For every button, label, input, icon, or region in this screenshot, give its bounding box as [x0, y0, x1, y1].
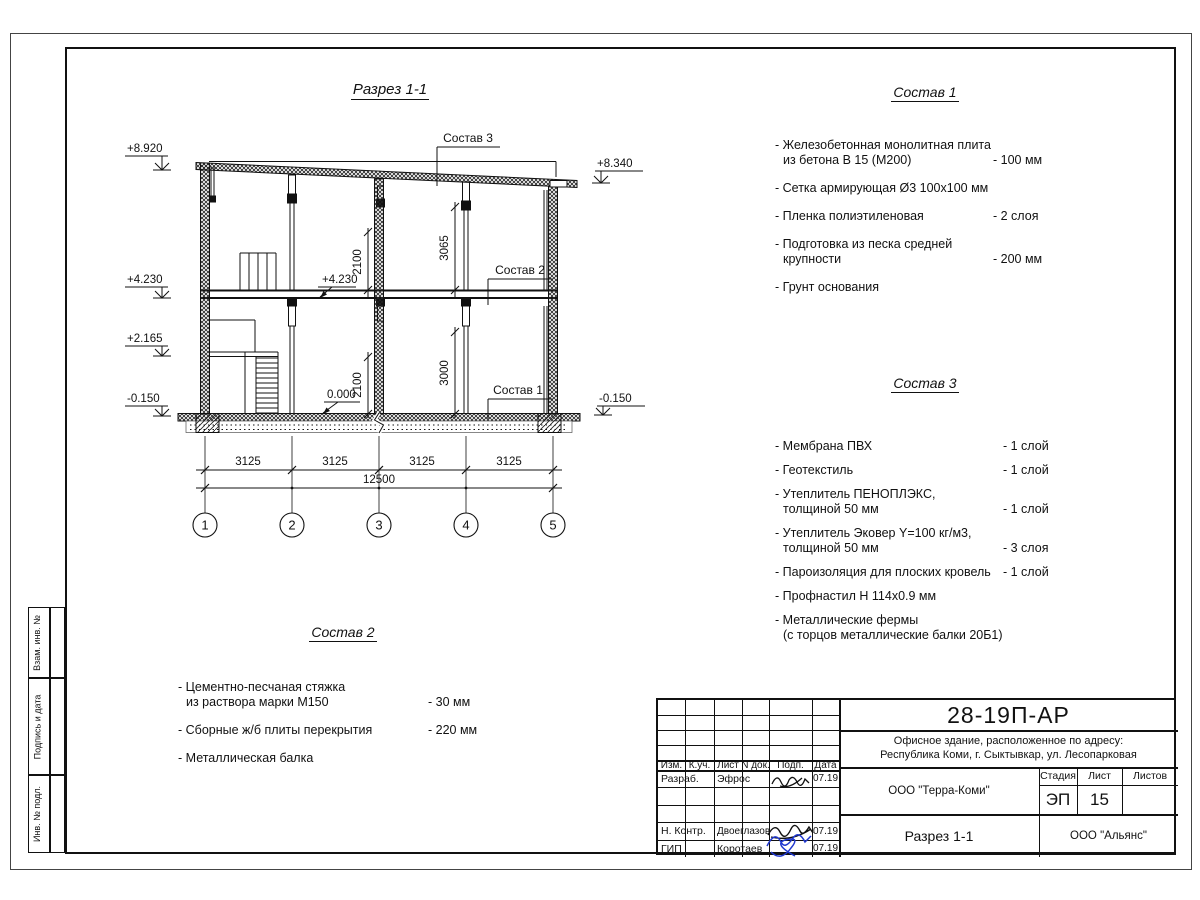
elev-left-top: +8.920: [127, 143, 163, 155]
axis-4: 4: [462, 518, 469, 533]
tb-name-efros: Эфрос: [714, 770, 772, 787]
dim-floor1-opening: 2100: [352, 372, 364, 398]
spec3-item: - Утеплитель ПЕНОПЛЭКС,толщиной 50 мм- 1…: [775, 487, 1115, 517]
ground-slab: [178, 413, 580, 433]
sidebox-podpis: Подпись и дата: [28, 678, 65, 775]
callout-sostav1: Состав 1: [493, 383, 543, 397]
spec1-title: Состав 1: [775, 85, 1075, 100]
tb-company: ООО "Терра-Коми": [839, 767, 1039, 814]
sidebox-label: Инв. № подл.: [32, 786, 42, 842]
callout-sostav2: Состав 2: [495, 263, 545, 277]
spec1-item: - Пленка полиэтиленовая- 2 слоя: [775, 209, 1105, 224]
tb-role-nkontr: Н. Контр.: [658, 822, 717, 840]
sidebox-vzam: Взам. инв. №: [28, 607, 65, 678]
elev-right-top: +8.340: [597, 158, 633, 170]
sidebox-inv: Инв. № подл.: [28, 775, 65, 853]
dim-floor1-clear: 3000: [439, 360, 451, 386]
tb-header-izm: Изм.: [658, 760, 685, 770]
spec2-item: - Цементно-песчаная стяжкаиз раствора ма…: [178, 680, 508, 710]
spec2-item: - Сборные ж/б плиты перекрытия- 220 мм: [178, 723, 508, 738]
tb-document-code: 28-19П-АР: [839, 700, 1178, 730]
sidebox-label: Подпись и дата: [32, 694, 42, 759]
elev-left-base: -0.150: [127, 393, 160, 405]
tb-date-razrab: 07.19: [812, 770, 839, 787]
callout-leaders: [437, 147, 553, 419]
dim-span-1: 3125: [235, 456, 261, 468]
tb-role-razrab: Разраб.: [658, 770, 717, 787]
spec-sostav1: Состав 1 - Железобетонная монолитная пли…: [775, 85, 1105, 308]
elev-inner-floor2: +4.230: [322, 274, 358, 286]
tb-header-ndok: N док.: [742, 760, 769, 770]
axis-1: 1: [201, 518, 208, 533]
spec3-item: - Утеплитель Эковер Y=100 кг/м3,толщиной…: [775, 526, 1115, 556]
dim-floor2-clear: 3065: [439, 235, 451, 261]
tb-header-data: Дата: [812, 760, 839, 770]
spec3-title: Состав 3: [775, 376, 1075, 391]
tb-doc-title: Разрез 1-1: [839, 814, 1039, 857]
callout-sostav3: Состав 3: [443, 131, 493, 145]
tb-date-nkontr: 07.19: [812, 822, 839, 840]
spec3-item: - Мембрана ПВХ- 1 слой: [775, 439, 1115, 454]
dim-floor2-opening: 2100: [352, 249, 364, 275]
roof: [196, 162, 577, 188]
elev-right-base: -0.150: [599, 393, 632, 405]
dim-span-2: 3125: [322, 456, 348, 468]
tb-object-line2: Республика Коми, г. Сыктывкар, ул. Лесоп…: [880, 749, 1137, 763]
stair-railing: [240, 253, 276, 290]
axis-5: 5: [549, 518, 556, 533]
spec3-item: - Металлические фермы(с торцов металличе…: [775, 613, 1115, 643]
spec-sostav2: Состав 2 - Цементно-песчаная стяжкаиз ра…: [178, 625, 508, 779]
signature-razrab: [770, 771, 812, 789]
dim-span-3: 3125: [409, 456, 435, 468]
tb-date-gip: 07.19: [812, 840, 839, 857]
section-title: Разрез 1-1: [330, 81, 450, 98]
spec2-title: Состав 2: [178, 625, 508, 640]
elev-left-low: +2.165: [127, 333, 163, 345]
tb-role-gip: ГИП: [658, 840, 717, 857]
elev-left-mid: +4.230: [127, 274, 163, 286]
title-block: Изм. К.уч. Лист N док. Подп. Дата Разраб…: [656, 698, 1176, 855]
axis-2: 2: [288, 518, 295, 533]
spec3-item: - Геотекстиль- 1 слой: [775, 463, 1115, 478]
spec1-item: - Подготовка из песка среднейкрупности- …: [775, 237, 1105, 267]
spec3-item: - Пароизоляция для плоских кровель- 1 сл…: [775, 565, 1115, 580]
staircase: [210, 253, 279, 413]
tb-object-line1: Офисное здание, расположенное по адресу:: [894, 735, 1123, 749]
spec-sostav3: Состав 3 - Мембрана ПВХ- 1 слой - Геотек…: [775, 376, 1115, 652]
axis-3: 3: [375, 518, 382, 533]
tb-header-list: Лист: [714, 760, 742, 770]
tb-stage-label: Стадия: [1039, 767, 1077, 785]
tb-header-kuch: К.уч.: [685, 760, 714, 770]
tb-sheets-total: [1122, 785, 1178, 814]
spec1-item: - Грунт основания: [775, 280, 1105, 295]
tb-object-address: Офисное здание, расположенное по адресу:…: [839, 730, 1178, 767]
spec1-item: - Сетка армирующая Ø3 100x100 мм: [775, 181, 1105, 196]
dim-total: 12500: [363, 474, 395, 486]
dim-span-4: 3125: [496, 456, 522, 468]
spec1-item: - Железобетонная монолитная плитаиз бето…: [775, 138, 1105, 168]
tb-sheet-number: 15: [1077, 785, 1122, 814]
walls: [201, 163, 558, 414]
tb-sheet-label: Лист: [1077, 767, 1122, 785]
spec2-item: - Металлическая балка: [178, 751, 508, 766]
signature-gip: [764, 832, 816, 862]
spec3-item: - Профнастил Н 114x0.9 мм: [775, 589, 1115, 604]
drawing-sheet: Состав 3 Состав 2 Состав 1 +8.920 +4.230…: [0, 0, 1200, 900]
tb-stage-value: ЭП: [1039, 785, 1077, 814]
sidebox-label: Взам. инв. №: [32, 615, 42, 671]
tb-header-podp: Подп.: [769, 760, 812, 770]
tb-sheets-label: Листов: [1122, 767, 1178, 785]
tb-contractor: ООО "Альянс": [1039, 814, 1178, 857]
